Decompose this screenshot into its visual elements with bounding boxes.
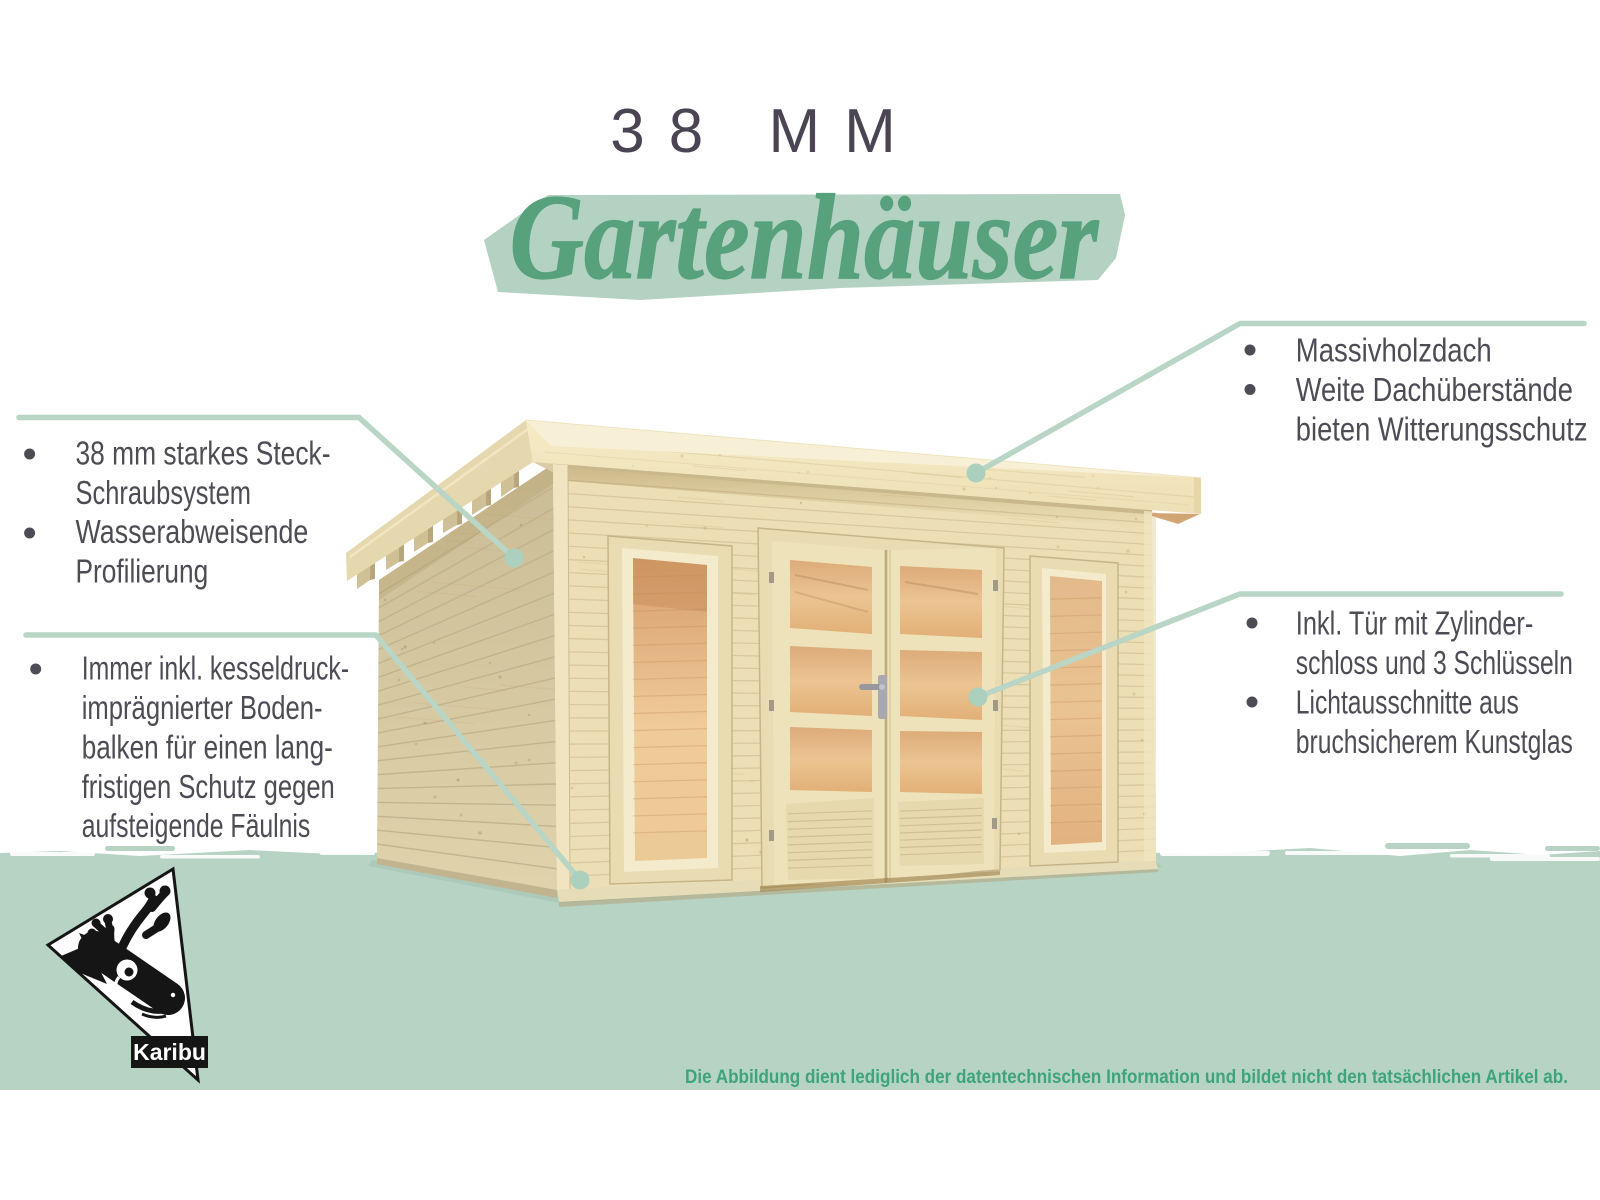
svg-text:Die Abbildung dient lediglich: Die Abbildung dient lediglich der datent… bbox=[685, 1066, 1568, 1088]
svg-text:aufsteigende Fäulnis: aufsteigende Fäulnis bbox=[82, 807, 311, 844]
svg-text:Schraubsystem: Schraubsystem bbox=[76, 474, 252, 511]
svg-text:Massivholzdach: Massivholzdach bbox=[1296, 332, 1492, 369]
svg-text:Inkl. Tür mit Zylinder-: Inkl. Tür mit Zylinder- bbox=[1296, 604, 1534, 641]
svg-text:balken für einen lang-: balken für einen lang- bbox=[82, 728, 333, 765]
svg-text:fristigen Schutz gegen: fristigen Schutz gegen bbox=[82, 768, 335, 805]
svg-text:imprägnierter Boden-: imprägnierter Boden- bbox=[82, 689, 323, 726]
svg-text:Gartenhäuser: Gartenhäuser bbox=[510, 170, 1100, 305]
svg-text:38 mm starkes Steck-: 38 mm starkes Steck- bbox=[76, 435, 331, 472]
svg-text:Immer inkl. kesseldruck-: Immer inkl. kesseldruck- bbox=[82, 650, 349, 687]
svg-text:bieten Witterungsschutz: bieten Witterungsschutz bbox=[1296, 411, 1588, 448]
svg-text:schloss und 3 Schlüsseln: schloss und 3 Schlüsseln bbox=[1296, 644, 1573, 681]
svg-text:Wasserabweisende: Wasserabweisende bbox=[76, 513, 309, 550]
svg-text:bruchsicherem Kunstglas: bruchsicherem Kunstglas bbox=[1296, 723, 1573, 760]
svg-text:Lichtausschnitte aus: Lichtausschnitte aus bbox=[1296, 684, 1519, 721]
svg-text:38 MM: 38 MM bbox=[610, 97, 919, 166]
svg-text:Karibu: Karibu bbox=[133, 1039, 206, 1065]
svg-text:Weite Dachüberstände: Weite Dachüberstände bbox=[1296, 371, 1573, 408]
svg-text:Profilierung: Profilierung bbox=[76, 553, 209, 590]
